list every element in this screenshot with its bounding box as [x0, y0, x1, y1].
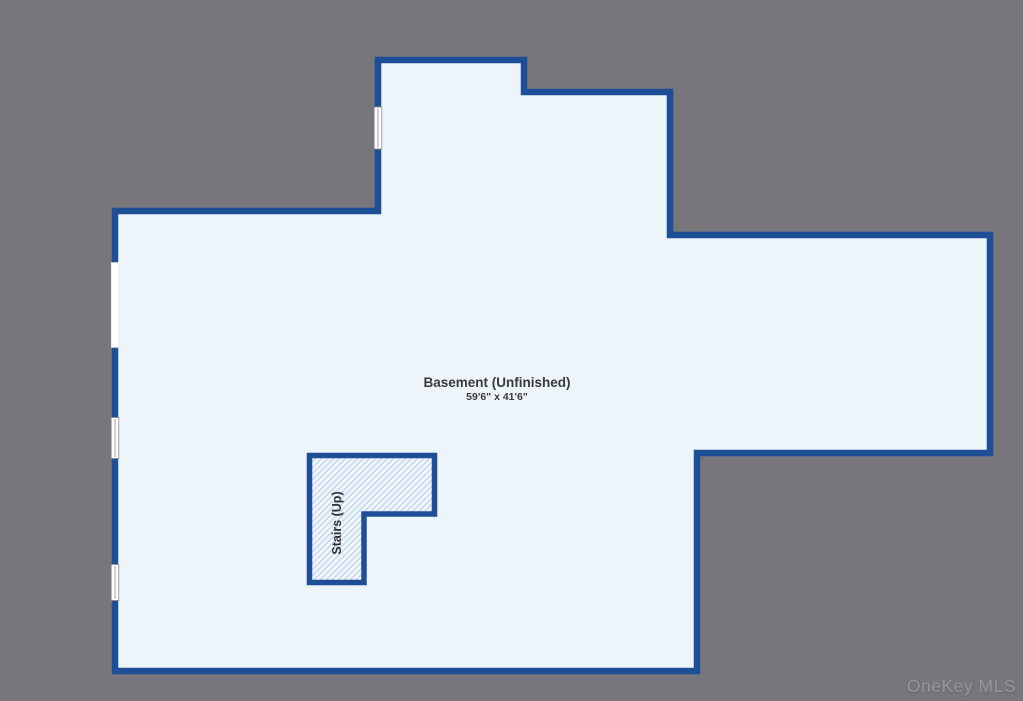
window-icon — [374, 107, 382, 149]
room-name-label: Basement (Unfinished) — [423, 375, 570, 390]
floorplan-svg: Stairs (Up) Basement (Unfinished) 59'6" … — [0, 0, 1023, 701]
mls-watermark: OneKey MLS — [907, 676, 1016, 697]
basement-outline — [115, 60, 990, 671]
stairs-label: Stairs (Up) — [330, 491, 344, 554]
window-icon — [111, 418, 119, 459]
floorplan-canvas: Stairs (Up) Basement (Unfinished) 59'6" … — [0, 0, 1023, 701]
wall-opening — [111, 263, 119, 348]
window-icon — [111, 565, 119, 601]
room-dimensions-label: 59'6" x 41'6" — [466, 391, 528, 403]
